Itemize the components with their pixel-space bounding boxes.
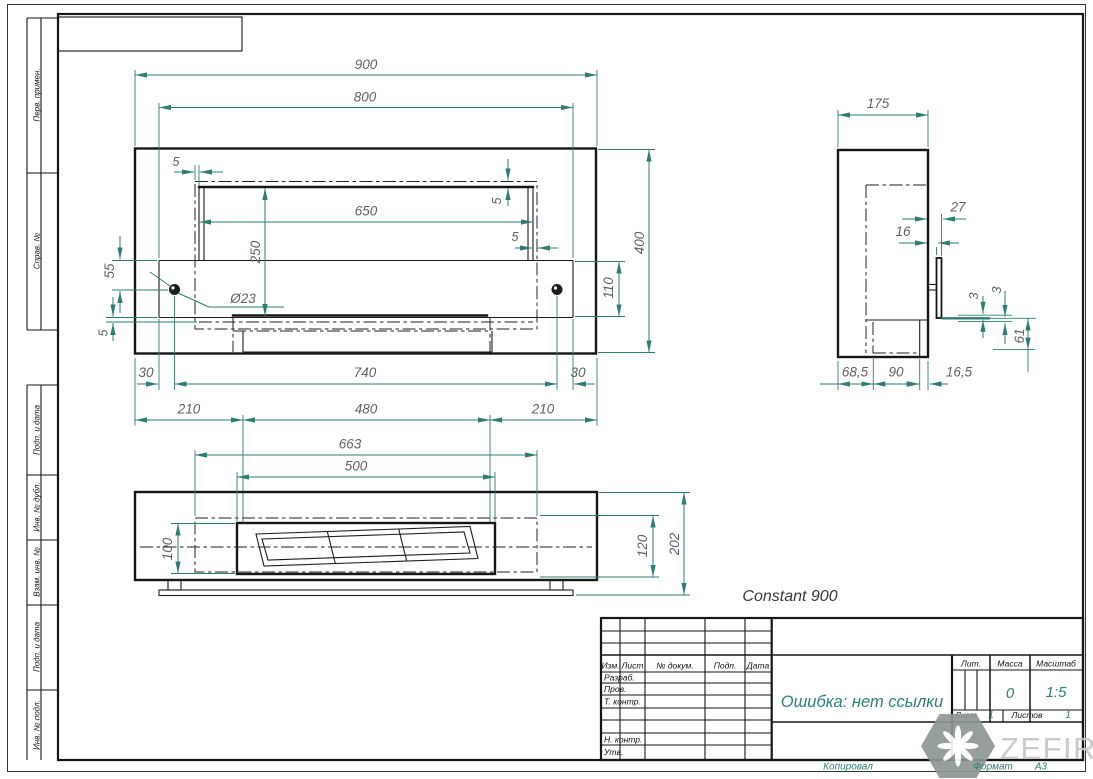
titleblock-row-razrab: Разраб. — [604, 673, 635, 683]
dim-side-drop: 61 — [1012, 328, 1027, 343]
dim-front-gap-top-left: 5 — [173, 155, 180, 169]
plan-insert-outline — [195, 518, 537, 572]
titleblock-row-tkontr: Т. контр. — [604, 697, 641, 707]
dim-front-mid-span: 480 — [355, 402, 378, 417]
dim-side-lip-a: 27 — [949, 200, 966, 215]
dim-plan-insert-depth: 120 — [635, 534, 650, 557]
titleblock-col-date: Дата — [746, 661, 770, 671]
titleblock-mass-value: 0 — [1006, 685, 1015, 702]
mount-hole-left-highlight — [171, 286, 174, 289]
dim-plan-slot-depth: 100 — [160, 537, 175, 560]
titleblock-col-izm: Изм. — [601, 661, 619, 671]
plan-view: 663 500 100 120 202 — [135, 437, 690, 596]
plan-outer-outline — [135, 492, 597, 580]
dim-front-hole-offset: 55 — [102, 263, 117, 279]
titleblock-scale-value: 1:5 — [1046, 684, 1068, 701]
outer-border — [8, 5, 1086, 772]
dim-front-holes-span: 740 — [354, 365, 377, 380]
strip-label-inv-dubl: Инв. № дубл. — [33, 482, 42, 531]
dim-hole-diameter: Ø23 — [229, 291, 256, 306]
dim-plan-overall-depth: 202 — [667, 532, 682, 556]
corner-stamp-box — [58, 17, 242, 51]
titleblock-scale-label: Масштаб — [1036, 659, 1077, 669]
front-view: Ø23 900 800 650 250 400 110 55 — [97, 57, 656, 522]
dim-side-gap-a: 3 — [967, 292, 981, 299]
product-name-label: Constant 900 — [742, 588, 837, 605]
gost-drawing-canvas: Перв. примен. Справ. № Подп. и дата Инв.… — [0, 0, 1093, 779]
titleblock-row-utv: Утв. — [603, 747, 623, 757]
dim-side-seg-b: 90 — [888, 365, 904, 380]
dim-front-gap-top-right: 5 — [490, 197, 504, 204]
dim-front-overall-width: 900 — [355, 57, 378, 72]
strip-label-perv-primen: Перв. примен. — [33, 68, 42, 121]
strip-label-sprav-no: Справ. № — [33, 232, 42, 269]
dim-plan-slot-width: 500 — [345, 459, 368, 474]
titleblock-mass-label: Масса — [997, 659, 1022, 669]
titleblock-col-list: Лист — [621, 661, 644, 671]
titleblock-col-doc: № докум. — [656, 661, 693, 671]
titleblock-col-podp: Подп. — [714, 661, 737, 671]
titleblock-sheets-label: Листов — [1011, 710, 1044, 720]
inner-frame — [58, 14, 1083, 760]
mount-hole-right-highlight — [554, 286, 557, 289]
dim-side-seg-a: 68,5 — [842, 365, 869, 380]
plan-base-plate — [159, 590, 573, 596]
left-column-strips: Перв. примен. Справ. № Подп. и дата Инв.… — [27, 18, 58, 760]
footer-copied-label: Копировал — [823, 762, 873, 773]
drawing-page: Перв. примен. Справ. № Подп. и дата Инв.… — [0, 0, 1093, 779]
mount-hole-right — [552, 284, 563, 295]
footer-format-label: Формат — [973, 762, 1013, 773]
footer-format-value: А3 — [1034, 762, 1048, 773]
dim-side-lip-b: 16 — [895, 224, 911, 239]
plan-foot-left — [168, 580, 181, 590]
dim-front-gap-right: 5 — [512, 230, 519, 244]
dim-front-band-height: 110 — [601, 277, 616, 299]
dim-front-edge-left: 30 — [138, 365, 154, 380]
strip-label-podp-data-1: Подп. и дата — [33, 404, 42, 455]
dim-front-window-height: 250 — [248, 240, 263, 264]
dim-side-gap-b: 3 — [990, 286, 1004, 293]
dim-front-leg-left: 210 — [177, 402, 201, 417]
dim-side-depth: 175 — [867, 96, 890, 111]
dim-front-overall-height: 400 — [632, 231, 647, 254]
dim-front-gap-bottom-left: 5 — [97, 329, 111, 336]
sheet-frame — [8, 5, 1086, 772]
dim-front-inner-width: 800 — [354, 90, 377, 105]
dim-side-seg-c: 16,5 — [946, 365, 973, 380]
titleblock-sheets-value: 1 — [1065, 710, 1071, 721]
side-glass-lip — [937, 258, 942, 318]
titleblock-lit-label: Лит. — [960, 659, 981, 669]
plan-foot-right — [550, 580, 563, 590]
titleblock-row-prov: Пров. — [604, 684, 626, 694]
titleblock-sheet-value: 1 — [988, 710, 994, 721]
logo-pinwheel-icon — [938, 726, 979, 767]
strip-label-vzam-inv: Взам. инв. № — [33, 547, 42, 597]
dim-plan-insert-width: 663 — [339, 437, 362, 452]
strip-label-podp-data-2: Подп. и дата — [33, 621, 42, 672]
side-view: 175 27 16 3 3 61 68,5 90 16,5 — [820, 96, 1036, 390]
dim-front-edge-right: 30 — [570, 365, 586, 380]
titleblock-row-nkontr: Н. контр. — [604, 735, 642, 745]
dim-front-leg-right: 210 — [531, 402, 555, 417]
titleblock-doc-title: Ошибка: нет ссылки — [781, 693, 943, 711]
dim-front-slot-width: 650 — [355, 204, 378, 219]
strip-label-inv-podl: Инв. № подл. — [33, 700, 42, 750]
side-outer-outline — [838, 150, 928, 357]
